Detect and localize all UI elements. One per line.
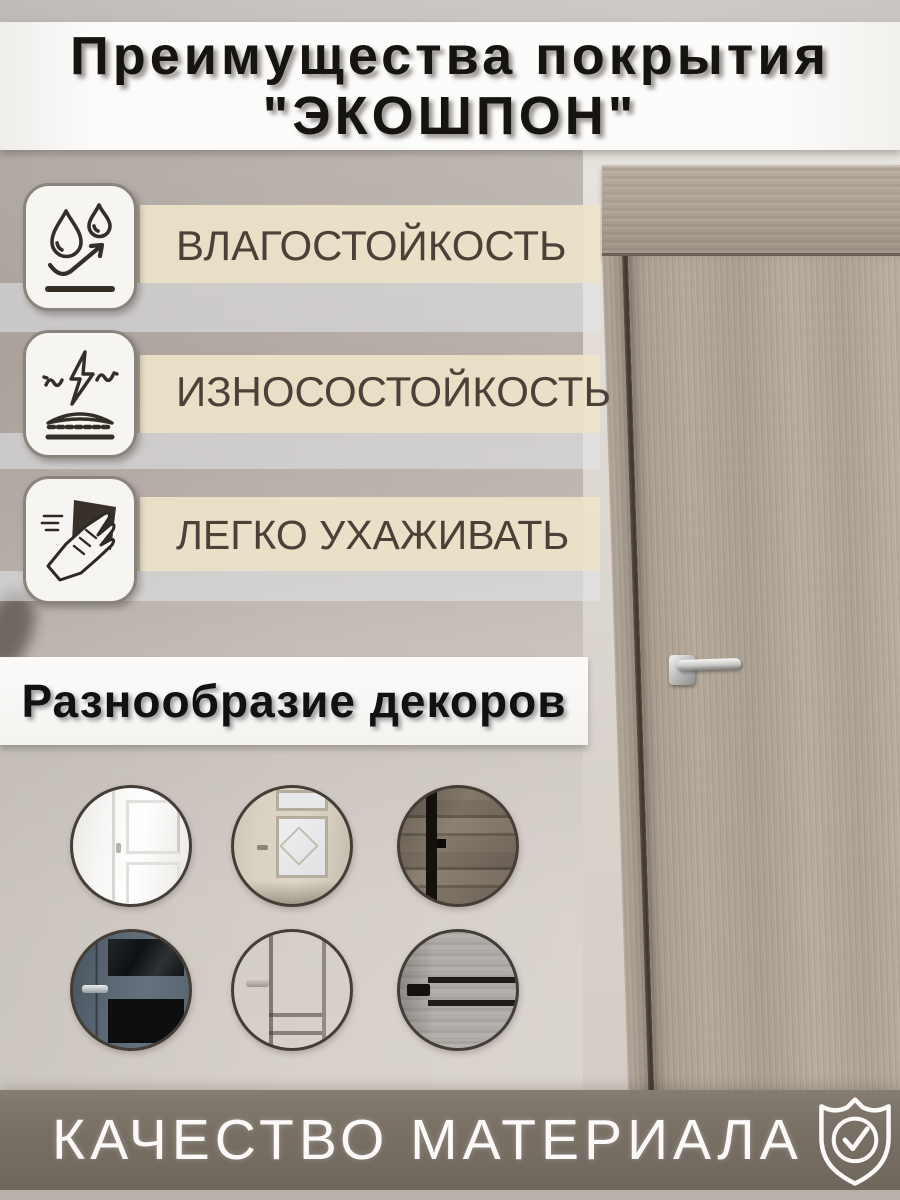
- door-frame-header: [602, 165, 900, 256]
- decor-detail: [407, 984, 430, 996]
- decor-white-classic-panel-door: [70, 785, 192, 907]
- page-title-line2: "ЭКОШПОН": [263, 86, 638, 146]
- feature-label-care: ЛЕГКО УХАЖИВАТЬ: [176, 510, 569, 560]
- decors-heading: Разнообразие декоров: [21, 674, 566, 728]
- decor-light-grey-plank-door: [397, 929, 519, 1051]
- decor-detail: [82, 985, 108, 993]
- decor-dark-rustic-plank-door: [397, 785, 519, 907]
- decor-taupe-classic-panel-door: [231, 929, 353, 1051]
- floor-strip: [0, 1190, 900, 1200]
- quality-label: КАЧЕСТВО МАТЕРИАЛА: [52, 1098, 803, 1182]
- feature-icon-box-wear: [23, 330, 137, 458]
- feature-label-wear: ИЗНОСОСТОЙКОСТЬ: [176, 367, 611, 417]
- decor-detail: [246, 978, 269, 986]
- decor-detail: [257, 845, 268, 850]
- water-drops-icon: [40, 198, 120, 296]
- door-body: [602, 256, 900, 1200]
- door-handle-lever: [677, 658, 741, 671]
- product-infographic: Преимущества покрытия "ЭКОШПОН": [0, 0, 900, 1200]
- feature-label-moisture: ВЛАГОСТОЙКОСТЬ: [176, 221, 567, 271]
- decor-detail: [116, 843, 121, 853]
- door-photo: [583, 150, 900, 1200]
- decor-slate-blue-door-with-dark-glass: [70, 929, 192, 1051]
- decor-detail: [279, 826, 319, 866]
- decor-ivory-door-with-lattice-glass: [231, 785, 353, 907]
- impact-resistance-icon: [40, 345, 120, 443]
- decors-banner: Разнообразие декоров: [0, 657, 588, 745]
- feature-icon-box-moisture: [23, 183, 137, 311]
- title-banner: Преимущества покрытия "ЭКОШПОН": [0, 22, 900, 150]
- wipe-hand-icon: [40, 491, 120, 589]
- feature-icon-box-care: [23, 476, 137, 604]
- decor-detail: [269, 1013, 322, 1035]
- decor-detail: [112, 788, 115, 904]
- quality-shield-check-icon: [815, 1094, 895, 1188]
- door-leaf: [628, 256, 900, 1200]
- page-title-line1: Преимущества покрытия: [70, 26, 830, 86]
